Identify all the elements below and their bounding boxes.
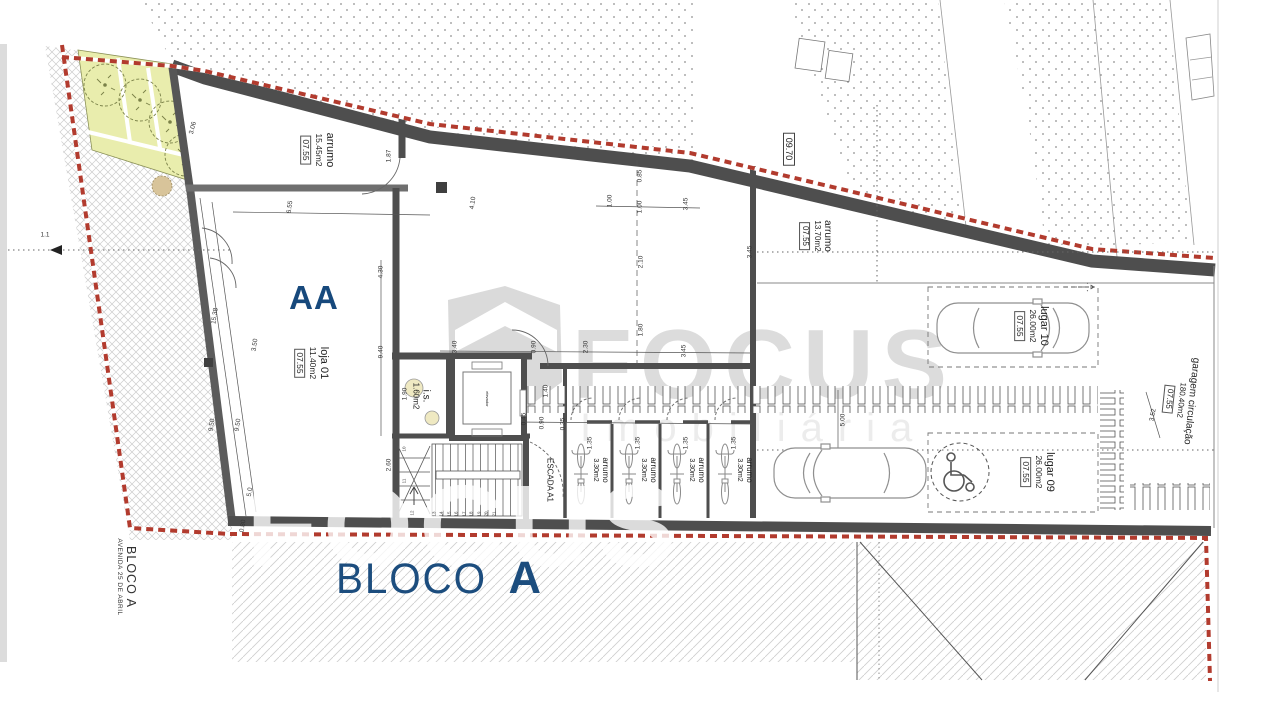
car-icon xyxy=(774,444,926,502)
elevator-shaft xyxy=(452,356,526,438)
floor-plan-sheet: FOCUS Imobiliária xyxy=(0,0,1280,720)
shrub-icon xyxy=(152,176,172,196)
leader-arrow xyxy=(50,245,62,255)
paving-tick-strip-vertical xyxy=(1100,390,1124,510)
car-icon xyxy=(937,299,1089,357)
column-marker xyxy=(204,358,213,367)
column-marker xyxy=(436,182,447,193)
elevator-door xyxy=(520,390,526,416)
floor-plan-drawing: FOCUS Imobiliária xyxy=(0,0,1280,720)
paving-tick-strip-lower xyxy=(1130,483,1210,510)
paving-tick-strip xyxy=(526,386,1098,413)
ramp-area xyxy=(857,542,1206,680)
watermark-brand-bottom: FOCUS xyxy=(246,461,682,591)
sheet-edge-strip xyxy=(0,44,7,662)
